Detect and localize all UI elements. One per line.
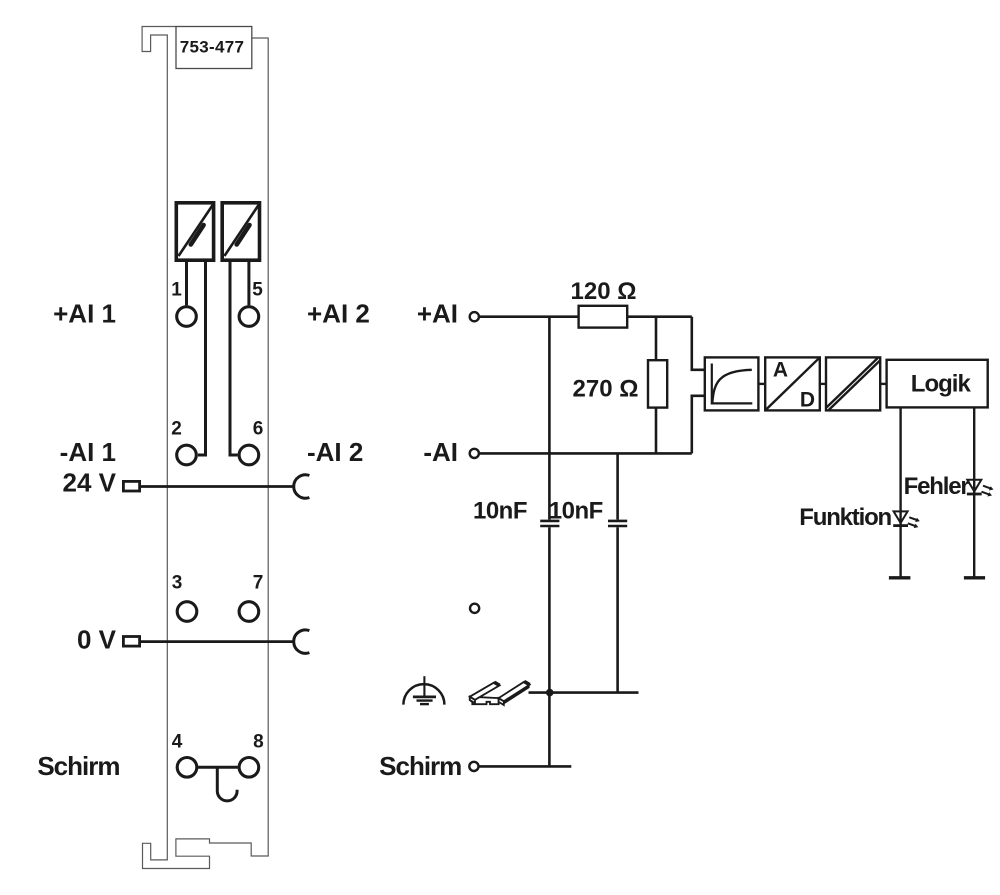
svg-text:-AI 2: -AI 2: [307, 437, 363, 467]
svg-text:-AI: -AI: [423, 437, 458, 467]
svg-text:1: 1: [171, 280, 182, 301]
svg-text:120 Ω: 120 Ω: [571, 278, 637, 305]
svg-text:10nF: 10nF: [473, 498, 527, 525]
svg-text:Schirm: Schirm: [37, 751, 119, 781]
svg-text:Funktion: Funktion: [799, 504, 891, 531]
svg-text:24 V: 24 V: [63, 468, 117, 498]
svg-text:+AI: +AI: [417, 299, 458, 329]
svg-text:5: 5: [252, 280, 263, 301]
svg-text:270 Ω: 270 Ω: [573, 376, 639, 403]
svg-text:+AI 2: +AI 2: [307, 299, 370, 329]
svg-text:+AI 1: +AI 1: [53, 299, 116, 329]
svg-text:6: 6: [253, 419, 264, 440]
svg-text:-AI 1: -AI 1: [60, 437, 116, 467]
svg-text:Logik: Logik: [911, 371, 972, 398]
svg-text:D: D: [800, 389, 815, 412]
svg-text:0 V: 0 V: [77, 624, 117, 654]
svg-text:2: 2: [171, 419, 182, 440]
svg-text:7: 7: [253, 573, 264, 594]
svg-text:A: A: [773, 359, 788, 382]
svg-text:3: 3: [172, 573, 183, 594]
svg-text:753-477: 753-477: [180, 38, 245, 57]
svg-text:4: 4: [172, 732, 183, 753]
svg-text:8: 8: [253, 732, 264, 753]
svg-text:Fehler: Fehler: [904, 473, 970, 500]
svg-text:10nF: 10nF: [549, 498, 603, 525]
svg-text:Schirm: Schirm: [379, 751, 461, 781]
